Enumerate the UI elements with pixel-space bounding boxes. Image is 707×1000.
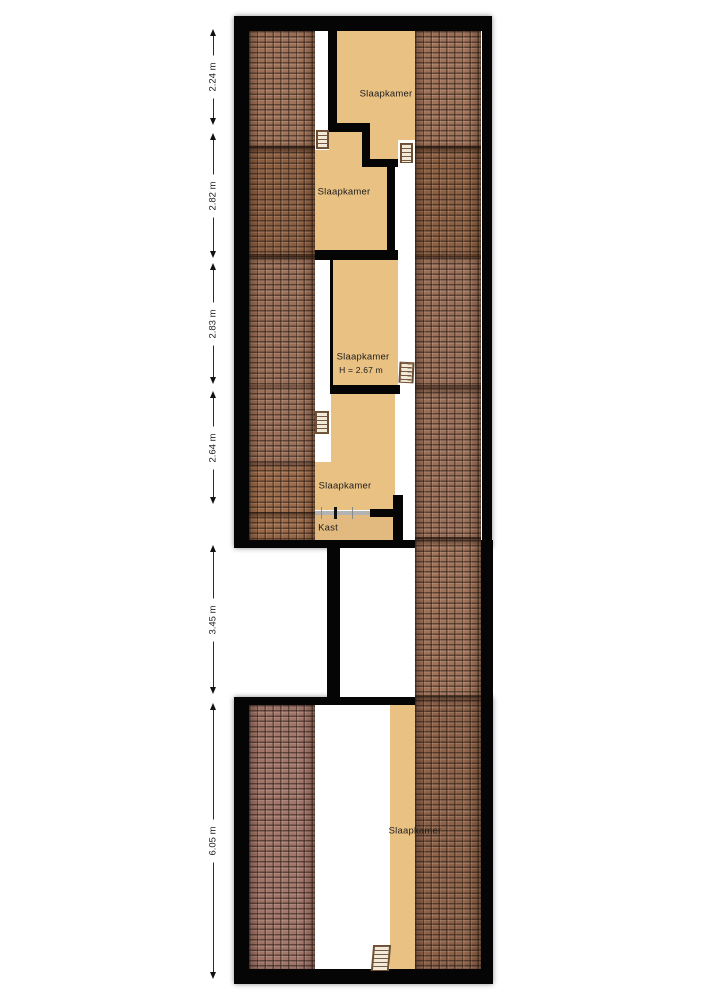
dimension-marker: 6.05 m <box>206 703 220 979</box>
room-label: Kast <box>318 523 338 534</box>
roof-shadow-band <box>415 537 481 545</box>
dimension-marker: 2.64 m <box>206 391 220 504</box>
roof-left-top-segment <box>249 31 315 147</box>
arrow-up-icon <box>210 391 216 398</box>
dimension-label: 2.64 m <box>208 426 219 469</box>
room-label: Slaapkamer <box>360 89 413 100</box>
dimension-label: 2.24 m <box>208 55 219 98</box>
sliding-door-rail <box>315 511 370 515</box>
stairs-icon <box>400 143 413 163</box>
roof-right-segment <box>415 31 481 147</box>
dimension-marker: 2.82 m <box>206 133 220 258</box>
wall-kast-right <box>393 495 403 541</box>
roof-left-top-segment <box>249 258 315 465</box>
dimension-label: 6.05 m <box>208 819 219 862</box>
stairwell-void-2 <box>398 140 415 385</box>
wall-section2-3-divider <box>315 250 398 260</box>
roof-shadow-band <box>415 254 481 260</box>
sliding-door-tick <box>321 507 322 519</box>
arrow-up-icon <box>210 29 216 36</box>
roof-shadow-band <box>415 385 481 392</box>
arrow-down-icon <box>210 377 216 384</box>
wall-bedroom3-bottom <box>330 385 400 394</box>
roof-shadow-band <box>249 146 315 153</box>
arrow-down-icon <box>210 251 216 258</box>
arrow-down-icon <box>210 972 216 979</box>
room-bedroom-5-strip <box>390 705 415 969</box>
room-label: Slaapkamer <box>389 826 442 837</box>
arrow-down-icon <box>210 497 216 504</box>
room-height-note: H = 2.67 m <box>339 365 383 375</box>
room-bedroom-1 <box>337 31 415 126</box>
roof-right-segment <box>415 392 481 540</box>
stairwell-void-4 <box>395 393 415 495</box>
dimension-marker: 2.83 m <box>206 263 220 384</box>
roof-shadow-band <box>249 254 315 261</box>
wall-bedroom2-right <box>387 159 395 260</box>
dimension-label: 3.45 m <box>208 598 219 641</box>
sliding-door-handle <box>334 507 337 519</box>
stairs-icon <box>316 130 329 149</box>
wall-kast-partition <box>370 509 393 517</box>
dimension-label: 2.83 m <box>208 302 219 345</box>
stairs-icon <box>315 411 329 434</box>
dimension-label: 2.82 m <box>208 174 219 217</box>
room-label: Slaapkamer <box>319 481 372 492</box>
roof-left-bottom-segment <box>249 705 315 969</box>
room-label: Slaapkamer <box>318 187 371 198</box>
arrow-up-icon <box>210 133 216 140</box>
floorplan-canvas: Slaapkamer Slaapkamer Slaapkamer H = 2.6… <box>0 0 707 1000</box>
room-bedroom-1-step2 <box>398 126 415 140</box>
roof-shadow-band <box>415 146 481 153</box>
roof-right-segment <box>415 540 481 700</box>
arrow-up-icon <box>210 545 216 552</box>
stairs-icon <box>398 362 414 384</box>
roof-left-top-segment <box>249 465 315 540</box>
roof-shadow-band <box>415 695 481 703</box>
dimension-marker: 2.24 m <box>206 29 220 125</box>
arrow-up-icon <box>210 703 216 710</box>
sliding-door-tick <box>352 507 353 519</box>
roof-right-segment <box>415 147 481 258</box>
arrow-down-icon <box>210 118 216 125</box>
wall-bedroom1-left <box>328 31 337 132</box>
room-label: Slaapkamer <box>337 352 390 363</box>
roof-shadow-band <box>249 385 315 390</box>
roof-shadow-band <box>249 462 315 467</box>
wall-bedroom3-left <box>330 260 333 385</box>
dimension-marker: 3.45 m <box>206 545 220 694</box>
arrow-up-icon <box>210 263 216 270</box>
roof-shadow-band <box>249 512 315 518</box>
roof-left-top-segment <box>249 147 315 258</box>
stairs-icon <box>371 945 391 971</box>
wall-middle-divider <box>327 548 340 705</box>
arrow-down-icon <box>210 687 216 694</box>
roof-right-segment <box>415 258 481 392</box>
